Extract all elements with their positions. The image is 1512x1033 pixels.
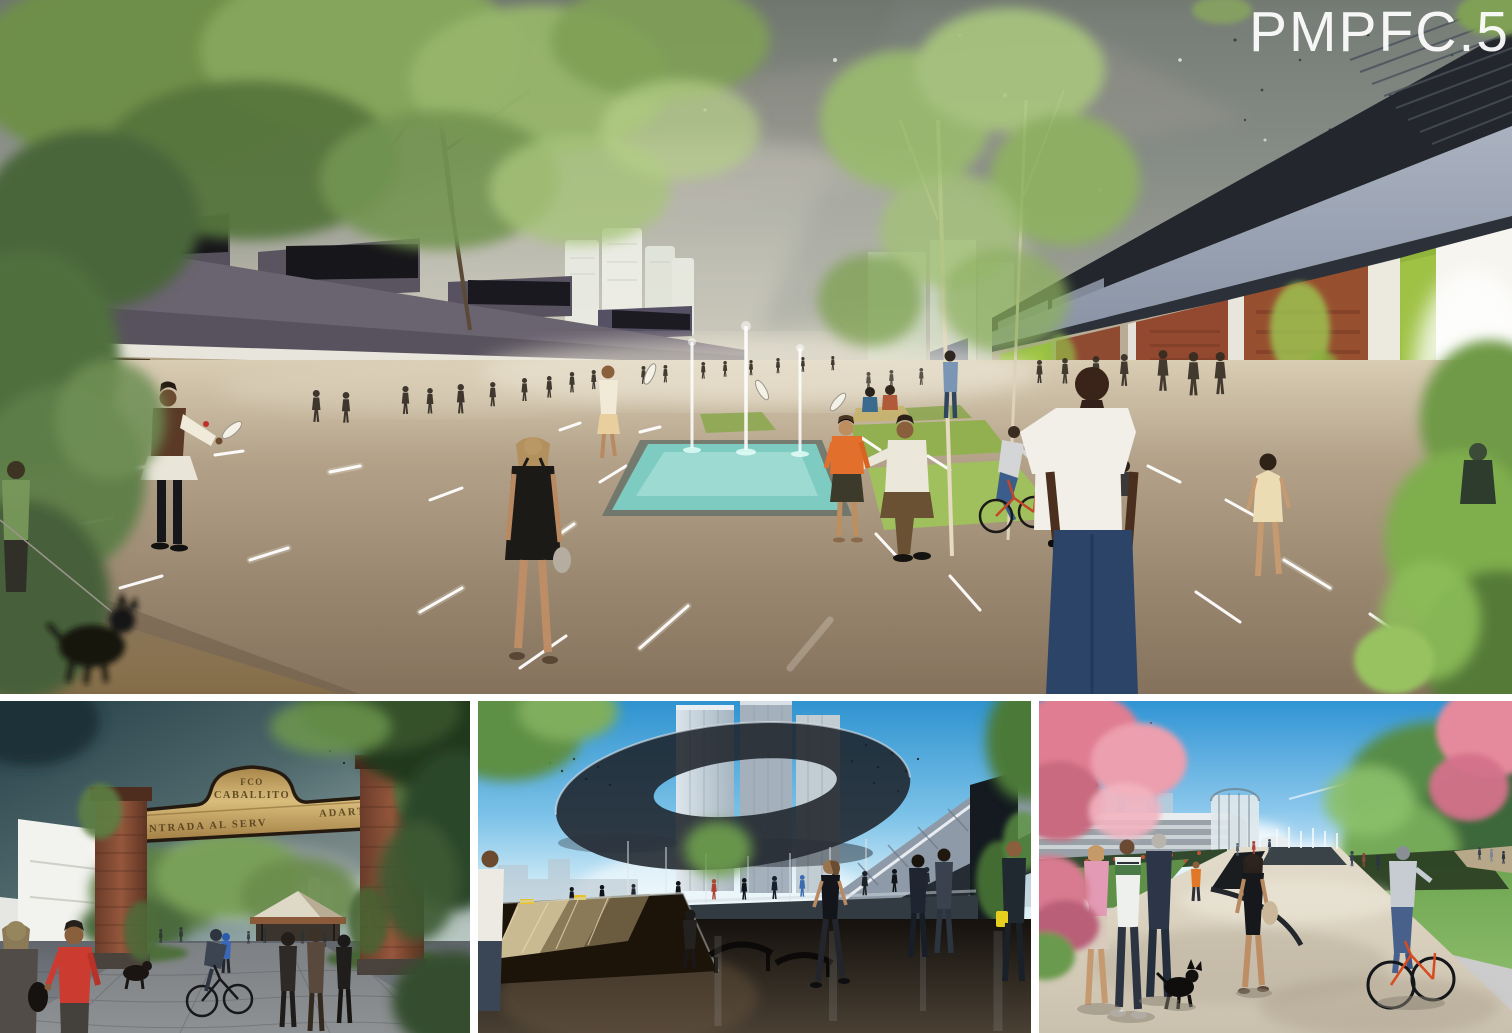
hub-sunken-pit [478,893,718,985]
arch-sign-line1: FCO [240,777,264,787]
promenade-scene [1039,701,1512,1033]
arch-sign-line2: CABALLITO [214,790,290,801]
hub-man-left-edge [478,851,504,1012]
hub-canopy-disc3 [558,833,678,853]
panel-arch-entrance: FCO CABALLITO ENTRADA AL SERV ADARTNE [0,701,470,1033]
left-edge-person-green [2,461,30,592]
panel-main-plaza: PMPFC.5 [0,0,1512,694]
board-title: PMPFC.5 [1249,4,1510,61]
arch-entrance-scene: FCO CABALLITO ENTRADA AL SERV ADARTNE [0,701,470,1033]
presentation-board: PMPFC.5 [0,0,1512,1033]
main-plaza-scene [0,0,1512,694]
transit-hub-scene [478,701,1031,1033]
panel-transit-hub [478,701,1031,1033]
panel-promenade [1039,701,1512,1033]
prom-gasometer [1211,789,1259,853]
